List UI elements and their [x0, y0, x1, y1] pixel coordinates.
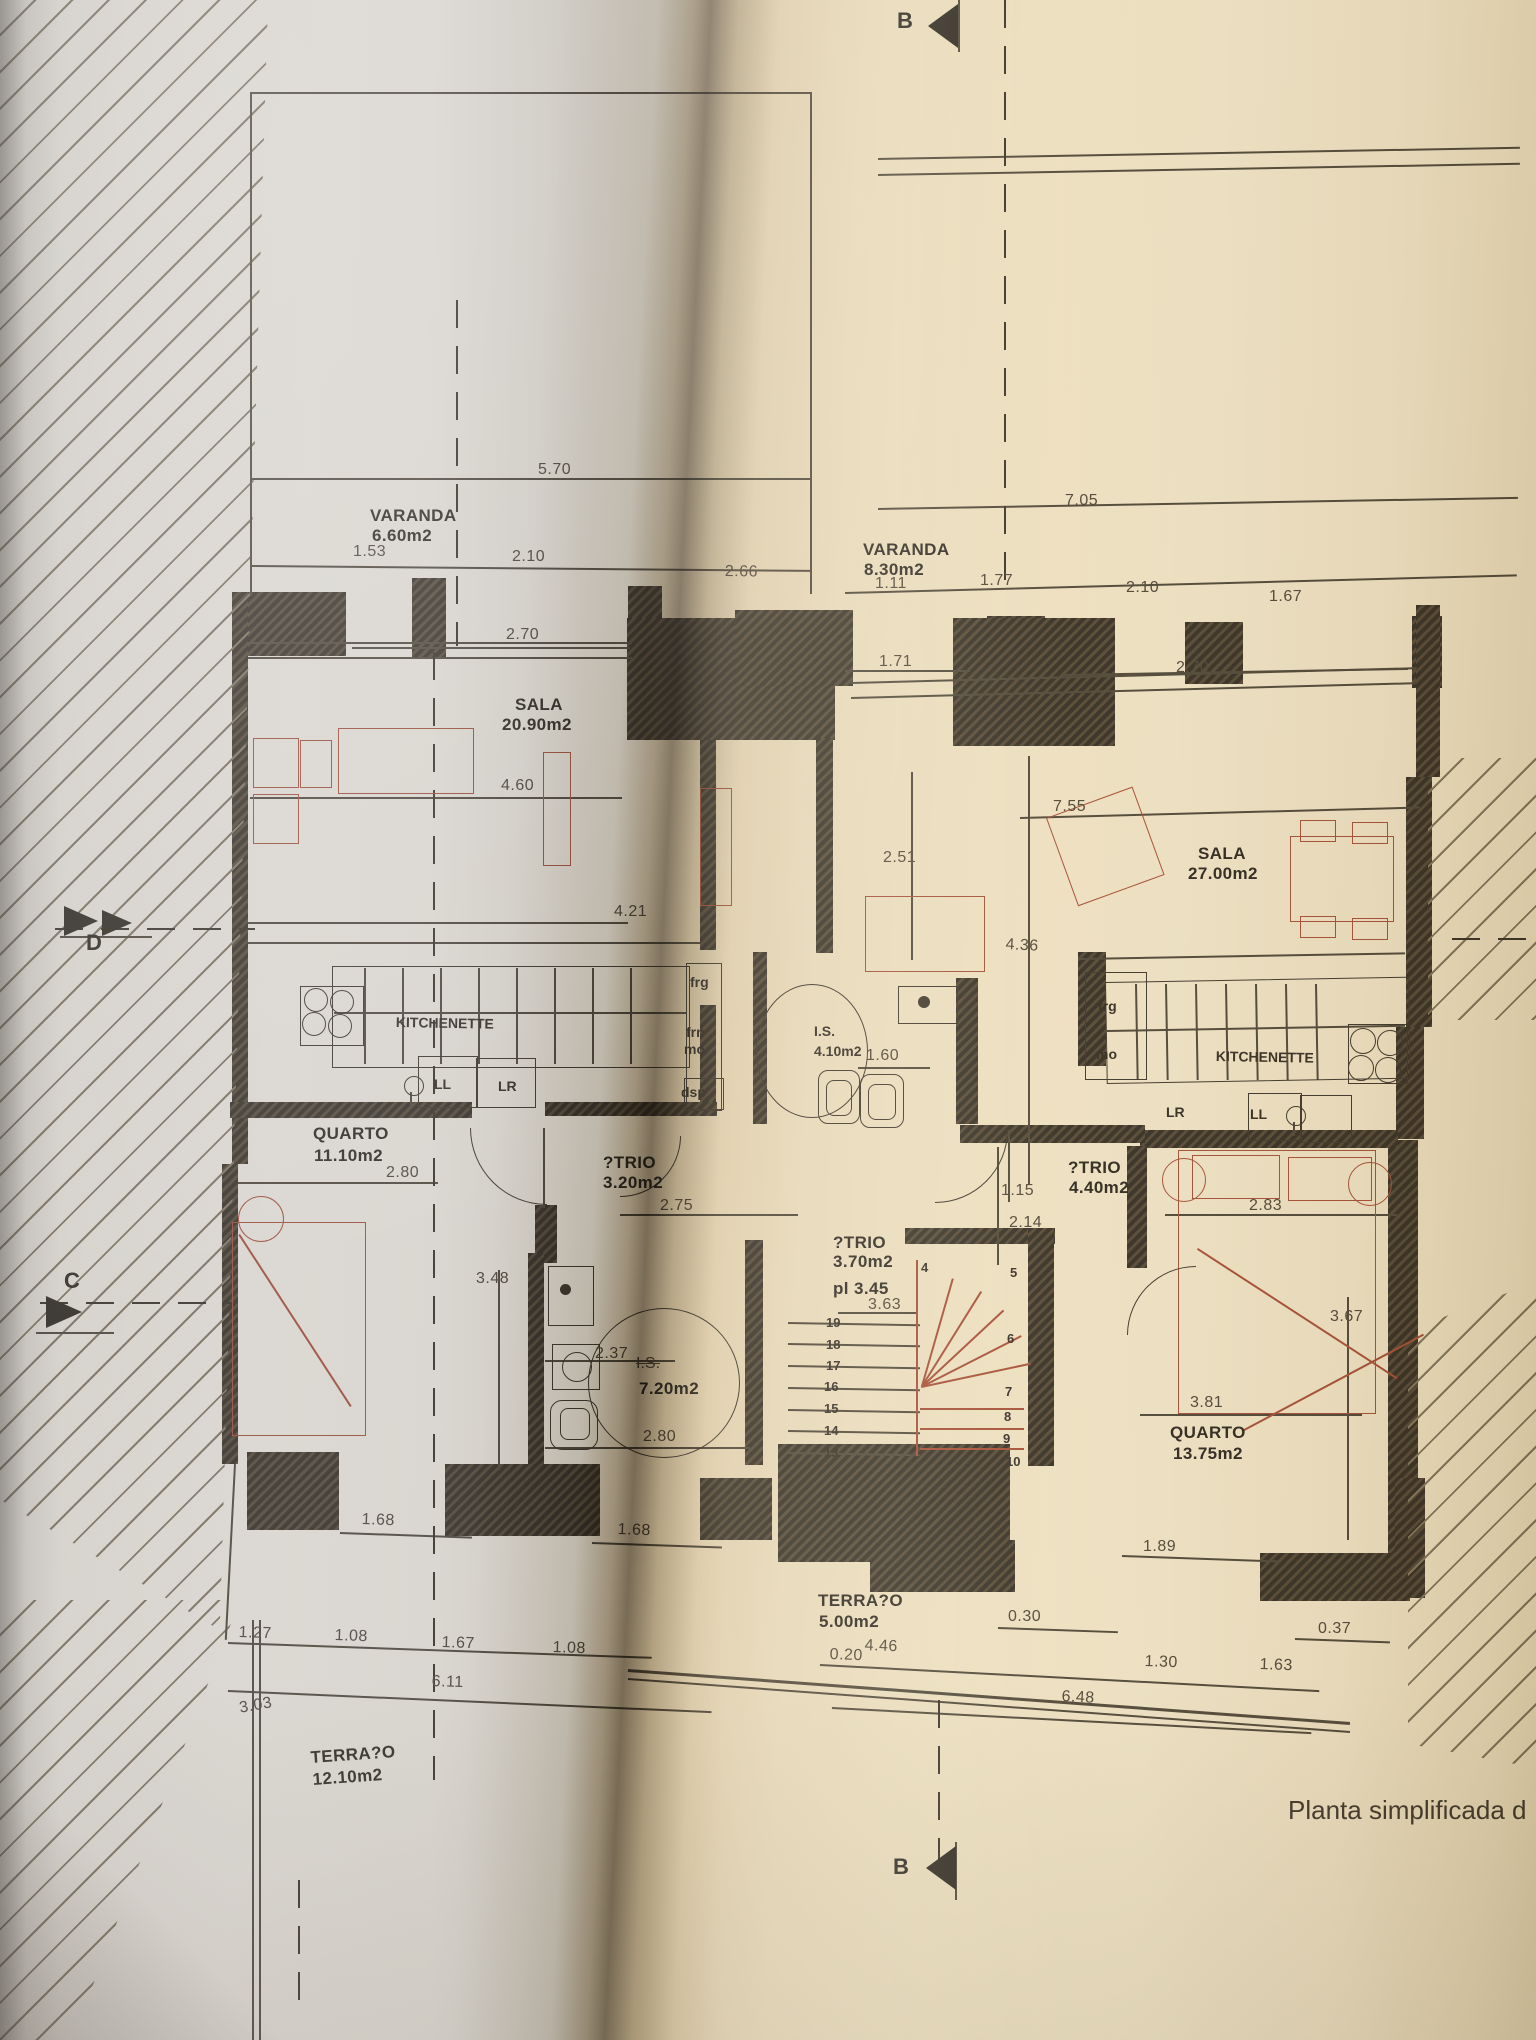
room-label: ?TRIO — [603, 1153, 656, 1173]
furniture-outline — [253, 794, 299, 844]
stair-step-number: 17 — [826, 1358, 840, 1373]
section-marker-flag-icon — [928, 4, 958, 48]
floor-plan-drawing: VARANDA6.60m25.701.532.102.662.70SALA20.… — [0, 0, 1536, 2040]
wall-segment — [816, 738, 833, 953]
dimension-label: 2.70 — [506, 626, 539, 644]
section-marker-letter: B — [897, 8, 913, 34]
fixture-outline — [1300, 1095, 1352, 1143]
room-label: QUARTO — [1170, 1423, 1246, 1443]
stair-step-number: 9 — [1003, 1431, 1010, 1446]
room-label: ?TRIO — [1068, 1158, 1121, 1178]
plan-line — [878, 497, 1518, 510]
room-label: SALA — [1198, 844, 1246, 864]
dimension-label: 2.70 — [1176, 659, 1209, 677]
fixture-outline — [548, 1266, 594, 1326]
section-marker-flag-icon — [102, 910, 132, 936]
fixture-circle — [1162, 1158, 1206, 1202]
furniture-outline — [338, 728, 474, 794]
fixture-circle — [1348, 1162, 1392, 1206]
plan-line — [788, 1387, 920, 1391]
plan-line — [248, 642, 632, 644]
dimension-label: 2.37 — [595, 1345, 628, 1363]
stair-tread-line — [921, 1363, 1031, 1388]
furniture-outline — [1290, 836, 1394, 922]
dimension-label: 2.14 — [1009, 1214, 1042, 1232]
section-marker-flag-icon — [926, 1846, 956, 1890]
appliance-label: KITCHENETTE — [1216, 1048, 1314, 1066]
plan-line — [252, 92, 812, 94]
wall-segment — [870, 1540, 1015, 1592]
dimension-label-struck: I.S. — [636, 1355, 660, 1373]
furniture-outline — [1352, 918, 1388, 940]
room-label: SALA — [515, 695, 563, 715]
axis-dashed-line — [433, 652, 435, 1780]
dimension-label: 1.67 — [1269, 588, 1302, 606]
dimension-label: 2.80 — [643, 1428, 676, 1446]
plan-line — [248, 657, 632, 659]
dimension-label: 1.60 — [866, 1047, 899, 1065]
plan-line — [36, 1332, 114, 1334]
dimension-label: 5.70 — [538, 461, 571, 479]
furniture-outline — [543, 752, 571, 866]
furniture-outline — [1300, 916, 1336, 938]
dimension-label: 1.68 — [361, 1511, 395, 1530]
room-label: 4.40m2 — [1069, 1178, 1129, 1198]
dimension-label: 1.53 — [353, 543, 386, 561]
dimension-label: 2.66 — [725, 563, 758, 582]
room-label: TERRA?O — [818, 1591, 903, 1611]
fixture-circle — [1377, 1030, 1403, 1056]
dimension-label: 1.71 — [879, 653, 912, 671]
appliance-label: dsp — [681, 1084, 706, 1100]
fixture-circle — [560, 1284, 571, 1295]
dimension-label: 3.67 — [1330, 1308, 1363, 1326]
appliance-label: I.S. — [814, 1023, 835, 1039]
room-label: QUARTO — [313, 1124, 389, 1144]
stair-step-number: 6 — [1007, 1331, 1014, 1346]
room-label: 3.20m2 — [603, 1173, 663, 1193]
room-label: 20.90m2 — [502, 715, 572, 735]
fixture-outline — [332, 966, 690, 1068]
dimension-label: 2.10 — [512, 548, 545, 566]
appliance-label: frg — [1098, 998, 1117, 1014]
fixture-circle — [328, 1014, 352, 1038]
fixture-circle — [404, 1076, 424, 1096]
plan-line — [250, 478, 810, 480]
dimension-label: 1.15 — [1001, 1182, 1034, 1200]
furniture-outline — [1300, 820, 1336, 842]
appliance-label: 4.10m2 — [814, 1043, 861, 1059]
stair-tread-line — [916, 1260, 918, 1456]
stair-step-number: 13 — [824, 1445, 838, 1460]
stair-step-number: 5 — [1010, 1265, 1017, 1280]
plan-line — [878, 163, 1520, 176]
plan-line — [810, 92, 812, 594]
plan-line — [259, 1620, 261, 2040]
plan-line — [228, 1642, 652, 1658]
appliance-label: LL — [434, 1076, 451, 1092]
dimension-label: 2.80 — [386, 1164, 419, 1182]
stair-tread-line — [920, 1428, 1024, 1430]
door-swing-arc — [1127, 1266, 1196, 1335]
wall-segment — [953, 618, 1115, 746]
site-hatch-region — [1428, 758, 1536, 1020]
section-marker-flag-icon — [46, 1296, 82, 1328]
wall-segment — [247, 1452, 339, 1530]
plan-line — [1028, 756, 1030, 1184]
room-label: 27.00m2 — [1188, 864, 1258, 884]
plan-line — [60, 936, 152, 938]
section-marker-letter: C — [64, 1268, 80, 1294]
plan-line — [248, 922, 628, 924]
wall-segment — [445, 1464, 600, 1536]
dimension-label: 1.08 — [334, 1627, 368, 1646]
stair-step-number: 10 — [1006, 1454, 1020, 1469]
furniture-outline — [300, 740, 332, 788]
wall-segment — [735, 610, 853, 686]
room-label: TERRA?O — [310, 1742, 396, 1768]
dimension-label: 1.67 — [441, 1634, 475, 1653]
stair-step-number: 19 — [826, 1315, 840, 1330]
dimension-label: 7.55 — [1053, 798, 1086, 816]
stair-step-number: 15 — [824, 1401, 838, 1416]
room-label: 13.75m2 — [1173, 1444, 1243, 1464]
axis-dashed-line — [456, 300, 458, 646]
axis-dashed-line — [298, 1880, 300, 2010]
dimension-label: 4.46 — [864, 1637, 898, 1656]
plan-caption: Planta simplificada d — [1288, 1795, 1526, 1826]
fixture-outline — [560, 1408, 590, 1440]
dimension-label: 1.08 — [552, 1639, 586, 1658]
plan-line — [620, 1214, 798, 1216]
stair-step-number: 16 — [824, 1379, 838, 1394]
appliance-label: mo — [684, 1041, 705, 1057]
section-marker-letter: B — [893, 1854, 909, 1880]
appliance-label: LR — [1166, 1104, 1185, 1120]
furniture-outline — [700, 788, 732, 906]
stair-step-number: 7 — [1005, 1384, 1012, 1399]
plan-line — [238, 1182, 438, 1184]
plan-line — [788, 1430, 920, 1434]
room-label: 7.20m2 — [639, 1379, 699, 1399]
plan-line — [788, 1409, 920, 1413]
axis-dashed-line — [1004, 0, 1006, 596]
stair-step-number: 18 — [826, 1337, 840, 1352]
stair-tread-line — [920, 1448, 1024, 1450]
dimension-label: 3.03 — [238, 1694, 274, 1717]
wall-segment — [1127, 1146, 1147, 1268]
dimension-label: 2.10 — [1126, 579, 1159, 597]
fixture-circle — [330, 990, 354, 1014]
wall-segment — [700, 1478, 772, 1540]
plan-line — [228, 1690, 712, 1713]
plan-line — [1140, 1414, 1362, 1416]
plan-line — [851, 682, 1417, 699]
fixture-circle — [238, 1196, 284, 1242]
plan-line — [958, 0, 960, 52]
dimension-label: 2.51 — [883, 849, 916, 867]
photographed-floor-plan-sheet: VARANDA6.60m25.701.532.102.662.70SALA20.… — [0, 0, 1536, 2040]
furniture-outline — [1352, 822, 1388, 844]
dimension-label: 3.48 — [476, 1270, 509, 1288]
dimension-label: 3.63 — [868, 1296, 901, 1314]
room-label: VARANDA — [370, 506, 457, 526]
appliance-label: LR — [498, 1078, 517, 1094]
site-hatch-region — [1408, 1282, 1536, 1768]
dimension-label: 1.68 — [617, 1521, 651, 1540]
dimension-label: 4.21 — [614, 903, 647, 921]
section-marker-letter: D — [86, 930, 102, 956]
dimension-label: 2.75 — [660, 1197, 693, 1215]
dimension-label: 1.11 — [875, 575, 907, 593]
appliance-label: frn — [686, 1024, 705, 1040]
fixture-circle — [1350, 1028, 1376, 1054]
dimension-label: 0.30 — [1008, 1608, 1041, 1626]
dimension-label: 1.27 — [238, 1624, 272, 1643]
appliance-label: KITCHENETTE — [396, 1014, 494, 1032]
dimension-label: 4.60 — [501, 777, 534, 795]
wall-segment — [412, 578, 446, 658]
appliance-label: frg — [690, 974, 709, 990]
dimension-label: 2.83 — [1249, 1197, 1282, 1215]
plan-line — [858, 1067, 930, 1069]
axis-dashed-line — [1452, 938, 1536, 940]
furniture-outline — [865, 896, 985, 972]
fixture-circle — [1286, 1106, 1306, 1126]
fixture-circle — [1375, 1057, 1401, 1083]
wall-segment — [234, 592, 346, 656]
fixture-outline — [1085, 972, 1147, 1080]
door-swing-arc — [470, 1128, 547, 1205]
plan-line — [845, 574, 1517, 593]
fixture-circle — [1348, 1055, 1374, 1081]
fixture-circle — [302, 1012, 326, 1036]
stair-step-number: 4 — [921, 1260, 928, 1275]
plan-line — [788, 1322, 920, 1326]
appliance-label: LL — [1250, 1106, 1267, 1122]
room-label: 12.10m2 — [312, 1765, 383, 1790]
room-label: 5.00m2 — [819, 1612, 879, 1632]
dimension-label: 6.11 — [431, 1673, 464, 1692]
dimension-label: 6.48 — [1061, 1688, 1095, 1708]
fixture-circle — [918, 996, 930, 1008]
plan-line — [1295, 1638, 1390, 1643]
dimension-label: 0.20 — [829, 1646, 863, 1665]
room-label: ?TRIO — [833, 1233, 886, 1253]
wall-segment — [1028, 1228, 1054, 1466]
room-label: 3.70m2 — [833, 1252, 893, 1272]
plan-line — [498, 1270, 500, 1470]
dimension-label: 0.37 — [1318, 1620, 1351, 1638]
dimension-label: 1.63 — [1259, 1656, 1293, 1675]
wall-segment — [528, 1253, 544, 1465]
appliance-label: mo — [1096, 1046, 1117, 1062]
fixture-outline — [868, 1084, 896, 1120]
plan-line — [352, 647, 630, 649]
plan-line — [250, 92, 252, 596]
room-label: 11.10m2 — [314, 1146, 383, 1166]
room-label: VARANDA — [863, 540, 950, 560]
plan-line — [1122, 1555, 1280, 1562]
plan-line — [788, 1365, 920, 1369]
furniture-outline — [253, 738, 299, 788]
wall-segment — [1260, 1553, 1410, 1601]
plan-line — [878, 147, 1520, 160]
site-hatch-region — [0, 1600, 240, 2040]
fixture-circle — [304, 988, 328, 1012]
wall-segment — [1416, 605, 1440, 777]
wall-segment — [745, 1240, 763, 1465]
dimension-label: 1.77 — [980, 572, 1013, 590]
dimension-label: 3.81 — [1190, 1394, 1223, 1412]
dimension-label: 1.30 — [1144, 1653, 1178, 1672]
fixture-circle — [562, 1352, 592, 1382]
dimension-label: 1.89 — [1143, 1538, 1176, 1556]
plan-line — [788, 1343, 920, 1347]
stair-step-number: 14 — [824, 1423, 838, 1438]
dimension-label: 4.36 — [1005, 936, 1039, 956]
stair-step-number: 8 — [1004, 1409, 1011, 1424]
plan-line — [1080, 952, 1405, 959]
plan-line — [998, 1627, 1118, 1633]
plan-line — [248, 942, 700, 944]
wall-segment — [956, 978, 978, 1124]
dimension-label: 7.05 — [1065, 492, 1098, 510]
plan-line — [252, 1620, 254, 2040]
plan-line — [592, 1542, 722, 1548]
